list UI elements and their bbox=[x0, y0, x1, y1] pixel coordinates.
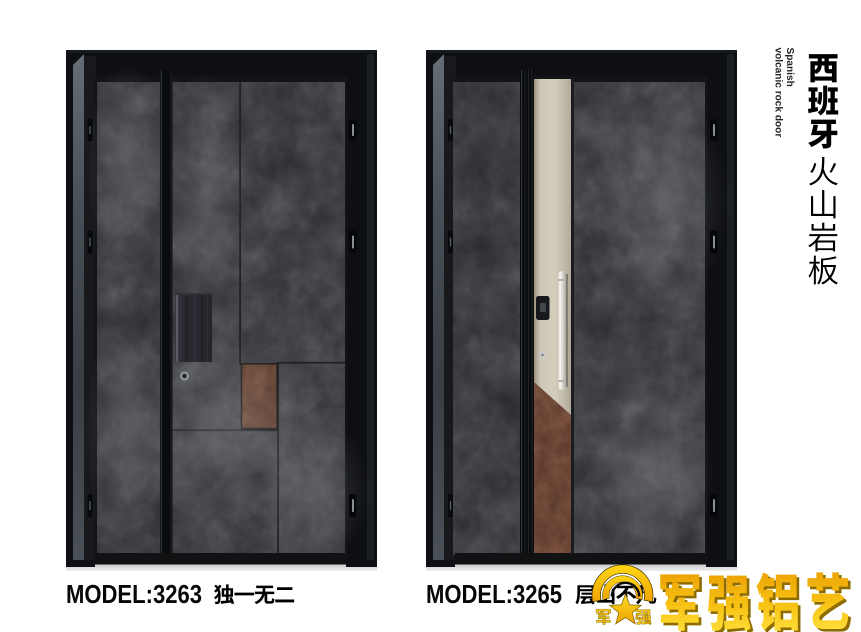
svg-text:MODEL:3265: MODEL:3265 bbox=[426, 579, 562, 609]
svg-text:MODEL:3263: MODEL:3263 bbox=[66, 579, 202, 609]
